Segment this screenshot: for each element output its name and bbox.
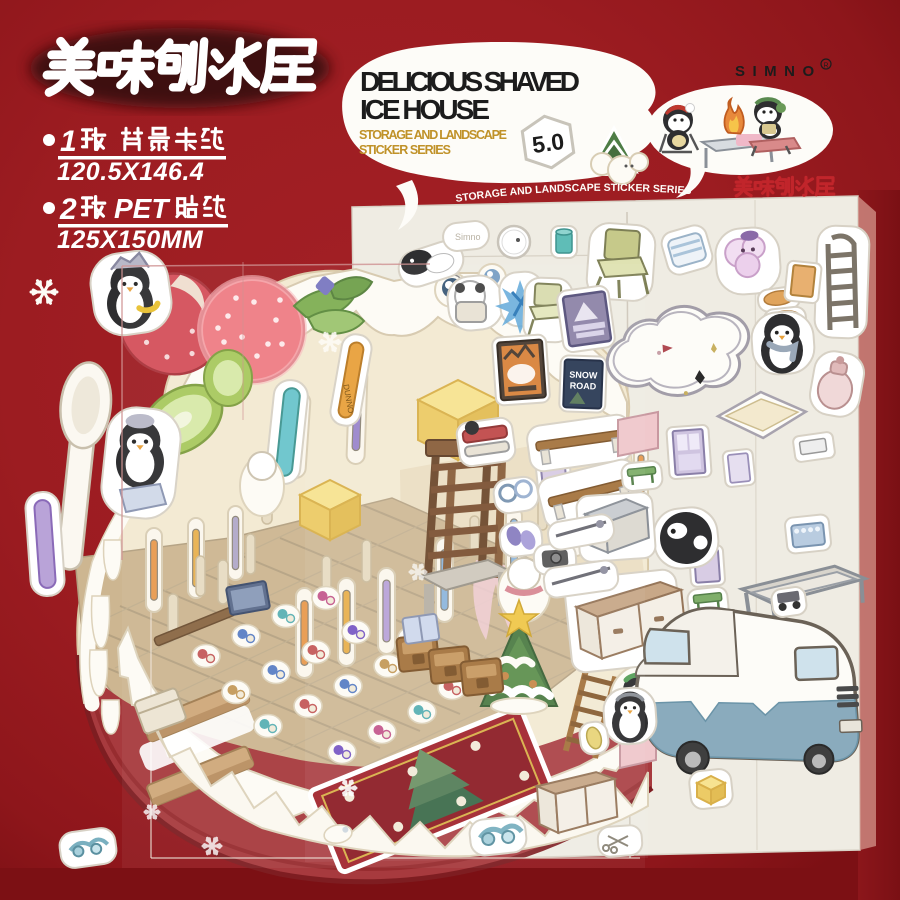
svg-text:120.5X146.4: 120.5X146.4 — [57, 158, 204, 186]
svg-text:STICKER SERIES: STICKER SERIES — [359, 143, 451, 157]
svg-text:DELICIOUS SHAVED: DELICIOUS SHAVED — [360, 66, 580, 97]
svg-text:2: 2 — [59, 193, 77, 226]
svg-text:1: 1 — [60, 125, 77, 158]
svg-text:125X150MM: 125X150MM — [57, 226, 204, 254]
svg-text:R: R — [823, 63, 828, 70]
svg-text:PET: PET — [114, 193, 171, 224]
svg-text:Simno: Simno — [455, 232, 481, 242]
svg-text:SIMNO: SIMNO — [735, 63, 822, 80]
svg-text:ICE HOUSE: ICE HOUSE — [360, 94, 490, 125]
svg-text:5.0: 5.0 — [530, 128, 565, 158]
svg-text:STORAGE AND LANDSCAPE: STORAGE AND LANDSCAPE — [359, 128, 507, 142]
